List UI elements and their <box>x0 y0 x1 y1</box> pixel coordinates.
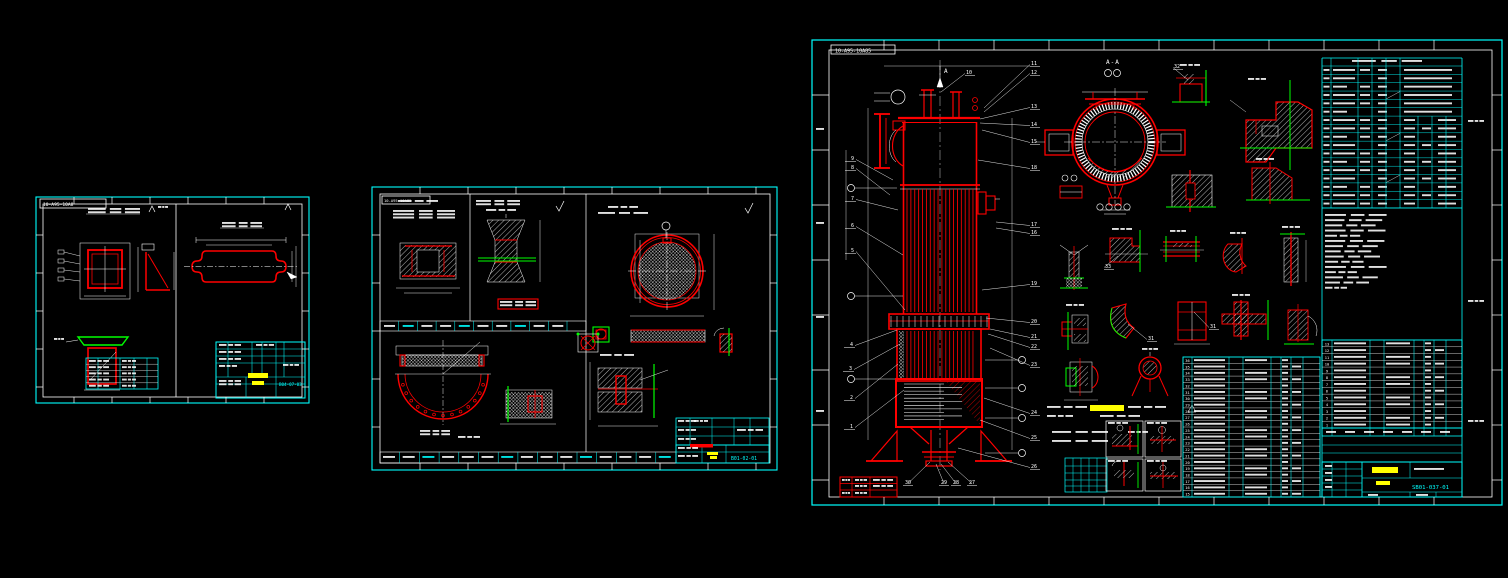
text-blur <box>1334 383 1366 385</box>
text-blur <box>1324 86 1330 88</box>
text-blur <box>1116 422 1120 424</box>
text-blur <box>1333 186 1347 188</box>
text-blur <box>264 344 268 346</box>
drawing-primitive <box>64 261 80 264</box>
drawing-primitive <box>1110 238 1140 262</box>
text-blur <box>1350 235 1360 237</box>
sheet-right-group: 3635343332313029282726252423222120191817… <box>812 40 1502 505</box>
text-blur <box>122 372 127 374</box>
drawing-primitive <box>417 250 439 272</box>
text-blur <box>283 364 288 366</box>
text-blur <box>1345 431 1355 433</box>
text-blur <box>1126 228 1132 230</box>
bom-row-number: 10 <box>1325 363 1329 367</box>
drawing-primitive <box>973 98 978 103</box>
text-blur <box>1333 127 1355 129</box>
text-blur <box>433 430 440 432</box>
drawing-primitive <box>1180 84 1202 102</box>
bom-row-number: 12 <box>1325 349 1329 353</box>
text-blur <box>1422 127 1431 129</box>
text-blur <box>228 380 233 382</box>
drawing-primitive <box>64 270 80 272</box>
text-blur <box>1386 376 1410 378</box>
text-blur <box>1468 300 1473 302</box>
drawing-primitive <box>897 329 981 381</box>
text-blur <box>1404 77 1452 79</box>
text-blur <box>1052 440 1071 442</box>
text-blur <box>1364 431 1374 433</box>
text-blur <box>1435 376 1444 378</box>
text-blur <box>1360 203 1370 205</box>
text-blur <box>1386 383 1410 385</box>
text-blur <box>420 430 430 432</box>
text-blur <box>476 200 491 202</box>
text-blur <box>692 455 698 457</box>
text-blur <box>1383 431 1393 433</box>
text-blur <box>235 351 241 353</box>
text-blur <box>686 429 690 431</box>
text-blur <box>250 225 262 227</box>
text-blur <box>1325 230 1346 232</box>
drawing-primitive <box>405 392 408 395</box>
text-blur <box>1438 119 1456 121</box>
drawing-primitive <box>58 259 64 263</box>
bom-row-number: 2 <box>1326 417 1328 421</box>
text-blur <box>227 365 231 367</box>
text-blur <box>1378 144 1387 146</box>
text-blur <box>1112 228 1119 230</box>
drawing-primitive <box>848 185 855 192</box>
callout-number: 13 <box>1031 104 1037 110</box>
text-blur <box>1194 410 1225 412</box>
text-blur <box>239 225 248 227</box>
drawing-primitive <box>707 452 718 455</box>
text-blur <box>816 316 824 318</box>
text-blur <box>860 479 863 481</box>
drawing-primitive <box>1376 481 1390 485</box>
cad-drawing-area[interactable]: 3635343332313029282726252423222120191817… <box>0 0 1508 578</box>
text-blur <box>1440 431 1450 433</box>
text-blur <box>89 372 96 374</box>
drawing-primitive <box>372 187 777 470</box>
text-blur <box>1333 111 1347 113</box>
text-blur <box>515 301 523 303</box>
text-blur <box>1194 455 1225 457</box>
text-blur <box>1333 136 1347 138</box>
drawing-primitive <box>1074 318 1086 326</box>
text-blur <box>1333 77 1355 79</box>
text-blur <box>1065 415 1073 417</box>
text-blur <box>422 456 434 458</box>
text-blur <box>704 420 708 422</box>
text-blur <box>89 385 96 387</box>
callout-number: 21 <box>1031 334 1037 340</box>
text-blur <box>110 211 121 213</box>
text-blur <box>128 385 131 387</box>
drawing-primitive <box>66 340 78 342</box>
text-blur <box>103 372 109 374</box>
text-blur <box>1351 266 1365 268</box>
drawing-primitive <box>1230 100 1246 112</box>
text-blur <box>1194 397 1225 399</box>
text-blur <box>219 365 225 367</box>
callout-number: 4 <box>850 342 853 348</box>
text-blur <box>1292 366 1301 368</box>
text-blur <box>1341 261 1349 263</box>
text-blur <box>692 447 698 449</box>
text-blur <box>845 492 847 494</box>
text-blur <box>421 325 432 327</box>
text-blur <box>235 358 241 360</box>
text-blur <box>678 447 685 449</box>
text-blur <box>842 492 845 494</box>
text-blur <box>1333 178 1355 180</box>
text-blur <box>1324 186 1330 188</box>
drawing-primitive <box>1019 450 1026 457</box>
text-blur <box>1194 461 1225 463</box>
drawing-primitive <box>1019 415 1026 422</box>
drawing-primitive <box>58 268 64 272</box>
text-blur <box>437 217 455 219</box>
callout-number: 23 <box>1031 362 1037 368</box>
bom-row-number: 36 <box>1185 359 1189 363</box>
text-blur <box>1333 153 1355 155</box>
text-blur <box>1378 194 1387 196</box>
callout-number: 12 <box>1031 70 1037 76</box>
text-blur <box>816 128 824 130</box>
text-blur <box>219 380 226 382</box>
text-blur <box>1325 479 1332 481</box>
text-blur <box>1425 397 1431 399</box>
text-blur <box>1422 144 1431 146</box>
text-blur <box>1435 390 1444 392</box>
text-blur <box>855 492 859 494</box>
text-blur <box>1047 406 1061 408</box>
text-blur <box>887 479 893 481</box>
drawing-primitive <box>982 285 1030 291</box>
text-blur <box>97 385 101 387</box>
text-blur <box>1295 226 1300 228</box>
section-view-label: A-A <box>1106 59 1120 66</box>
text-blur <box>290 364 294 366</box>
text-blur <box>507 200 520 202</box>
bom-row-number: 9 <box>1326 369 1328 373</box>
drawing-primitive <box>482 383 485 386</box>
text-blur <box>1351 214 1365 216</box>
drawing-primitive <box>58 277 64 281</box>
text-blur <box>1333 203 1355 205</box>
text-blur <box>1261 78 1266 80</box>
text-blur <box>614 354 621 356</box>
text-blur <box>132 360 136 362</box>
text-blur <box>1282 486 1288 488</box>
text-blur <box>222 222 236 224</box>
bom-row-number: 15 <box>1185 493 1189 497</box>
callout-number: 18 <box>1031 165 1037 171</box>
drawing-primitive <box>1308 316 1317 336</box>
text-blur <box>1324 127 1330 129</box>
text-blur <box>1325 245 1343 247</box>
text-blur <box>887 485 893 487</box>
drawing-primitive <box>597 333 600 336</box>
text-blur <box>458 436 465 438</box>
text-blur <box>1324 136 1330 138</box>
text-blur <box>1356 282 1369 284</box>
text-blur <box>496 325 507 327</box>
text-blur <box>515 325 526 327</box>
bom-row-number: 6 <box>1326 390 1328 394</box>
drawing-primitive <box>926 461 952 466</box>
text-blur <box>1325 224 1342 226</box>
text-blur <box>1360 194 1370 196</box>
text-blur <box>294 364 299 366</box>
text-blur <box>1066 304 1072 306</box>
drawing-primitive <box>1159 376 1168 396</box>
text-blur <box>1241 232 1246 234</box>
text-blur <box>419 213 433 215</box>
text-blur <box>1052 431 1071 433</box>
text-blur <box>219 358 226 360</box>
text-blur <box>1404 127 1415 129</box>
text-blur <box>1378 136 1387 138</box>
text-blur <box>482 456 494 458</box>
text-blur <box>122 385 127 387</box>
drawing-primitive <box>1222 314 1266 324</box>
text-blur <box>1292 493 1301 495</box>
bom-row-number: 24 <box>1185 435 1190 439</box>
drawing-primitive <box>986 318 1030 323</box>
text-blur <box>1425 349 1431 351</box>
drawing-primitive <box>1117 425 1123 431</box>
text-blur <box>1404 86 1452 88</box>
drawing-primitive <box>984 398 1030 414</box>
drawing-primitive <box>1194 312 1209 328</box>
text-blur <box>1360 161 1370 163</box>
text-blur <box>1248 78 1254 80</box>
text-blur <box>845 479 847 481</box>
text-blur <box>403 325 414 327</box>
text-blur <box>440 325 451 327</box>
text-blur <box>500 301 512 303</box>
text-blur <box>1149 348 1153 350</box>
text-blur <box>1324 119 1330 121</box>
text-blur <box>1378 203 1387 205</box>
drawing-primitive <box>855 364 898 399</box>
text-blur <box>1282 461 1288 463</box>
text-blur <box>1425 410 1431 412</box>
drawing-primitive <box>1114 70 1121 77</box>
text-blur <box>1245 448 1267 450</box>
drawing-primitive <box>380 194 770 463</box>
text-blur <box>1324 178 1330 180</box>
text-blur <box>1074 304 1078 306</box>
drawing-primitive <box>402 355 482 366</box>
text-blur <box>1325 219 1344 221</box>
text-blur <box>419 210 433 212</box>
text-blur <box>1402 60 1422 62</box>
drawing-primitive <box>216 342 305 398</box>
text-blur <box>235 383 241 385</box>
text-blur <box>165 206 168 208</box>
drawing-primitive <box>1107 185 1112 198</box>
text-blur <box>1360 153 1370 155</box>
text-blur <box>1378 127 1387 129</box>
text-blur <box>1360 127 1370 129</box>
text-blur <box>1438 153 1456 155</box>
text-blur <box>1194 416 1225 418</box>
text-blur <box>507 209 516 211</box>
bom-row-number: 21 <box>1185 454 1189 458</box>
text-blur <box>1324 161 1330 163</box>
text-blur <box>1194 378 1225 380</box>
text-blur <box>494 200 504 202</box>
text-blur <box>1325 465 1332 467</box>
text-blur <box>89 366 96 368</box>
cad-canvas[interactable]: 3635343332313029282726252423222120191817… <box>0 0 1508 578</box>
bom-row-number: 20 <box>1185 461 1189 465</box>
text-blur <box>1422 161 1431 163</box>
text-blur <box>128 366 131 368</box>
text-blur <box>1333 194 1355 196</box>
text-blur <box>1161 422 1167 424</box>
text-blur <box>437 210 455 212</box>
text-blur <box>1120 228 1124 230</box>
text-blur <box>128 372 131 374</box>
callout-number: 2 <box>850 395 853 401</box>
bom-row-number: 32 <box>1185 384 1189 388</box>
drawing-primitive <box>1118 185 1123 198</box>
text-blur <box>1386 342 1410 344</box>
bom-row-number: 19 <box>1185 467 1189 471</box>
text-blur <box>1324 144 1330 146</box>
text-blur <box>103 366 109 368</box>
drawing-primitive <box>43 204 302 397</box>
text-blur <box>1361 224 1376 226</box>
text-blur <box>97 366 101 368</box>
text-blur <box>864 485 867 487</box>
sheet-left-drawing-number: B04-07-03 <box>279 382 302 387</box>
text-blur <box>88 208 106 210</box>
drawing-primitive <box>473 399 476 402</box>
text-blur <box>1438 203 1456 205</box>
drawing-primitive <box>1019 385 1026 392</box>
drawing-primitive <box>856 160 893 181</box>
text-blur <box>678 429 684 431</box>
text-blur <box>1325 250 1341 252</box>
text-blur <box>1360 102 1370 104</box>
text-blur <box>1058 415 1064 417</box>
text-blur <box>97 360 101 362</box>
bom-row-number: 17 <box>1185 480 1189 484</box>
text-blur <box>507 203 520 205</box>
text-blur <box>1368 494 1378 496</box>
text-blur <box>1245 294 1250 296</box>
text-blur <box>219 344 226 346</box>
text-blur <box>1282 448 1288 450</box>
text-blur <box>1155 406 1166 408</box>
callout-number: 6 <box>851 223 854 229</box>
text-blur <box>1092 431 1108 433</box>
text-blur <box>1256 78 1260 80</box>
text-blur <box>1333 161 1347 163</box>
drawing-primitive <box>1092 366 1098 388</box>
text-blur <box>1245 455 1267 457</box>
bom-row-number: 3 <box>1326 410 1328 414</box>
drawing-primitive <box>856 169 890 196</box>
drawing-primitive <box>142 244 154 250</box>
text-blur <box>250 222 262 224</box>
drawing-primitive <box>996 222 1030 226</box>
drawing-primitive <box>149 206 155 212</box>
text-blur <box>1245 372 1267 374</box>
drawing-primitive <box>710 456 717 459</box>
text-blur <box>1324 169 1330 171</box>
text-blur <box>1402 431 1412 433</box>
text-blur <box>393 213 414 215</box>
text-blur <box>1245 378 1267 380</box>
text-blur <box>393 217 414 219</box>
text-blur <box>580 456 592 458</box>
text-blur <box>1404 136 1415 138</box>
text-blur <box>1245 391 1267 393</box>
text-blur <box>1334 369 1366 371</box>
text-blur <box>1079 304 1084 306</box>
text-blur <box>1128 406 1141 408</box>
drawing-primitive <box>1124 204 1130 210</box>
text-blur <box>1194 423 1225 425</box>
bom-row-number: 31 <box>1185 391 1189 395</box>
text-blur <box>1075 406 1087 408</box>
drawing-primitive <box>78 337 128 345</box>
text-blur <box>686 447 690 449</box>
text-blur <box>122 360 127 362</box>
bom-row-number: 4 <box>1326 403 1329 407</box>
text-blur <box>1378 94 1387 96</box>
drawing-primitive <box>982 130 1030 143</box>
text-blur <box>222 225 236 227</box>
drawing-primitive <box>416 406 419 409</box>
text-blur <box>1350 240 1363 242</box>
text-blur <box>1425 363 1431 365</box>
text-blur <box>1108 460 1115 462</box>
bom-row-number: 26 <box>1185 423 1189 427</box>
text-blur <box>1147 422 1154 424</box>
drawing-primitive <box>64 252 80 256</box>
text-blur <box>1325 486 1332 488</box>
text-blur <box>1360 169 1370 171</box>
text-blur <box>1438 194 1456 196</box>
text-blur <box>1194 429 1225 431</box>
text-blur <box>691 429 696 431</box>
bom-row-number: 18 <box>1185 474 1189 478</box>
text-blur <box>1282 359 1288 361</box>
text-blur <box>1325 214 1346 216</box>
text-blur <box>1282 467 1288 469</box>
text-blur <box>1245 474 1267 476</box>
bom-row-number: 1 <box>1326 424 1328 428</box>
drawing-primitive <box>1386 133 1400 141</box>
text-blur <box>476 203 491 205</box>
text-blur <box>1386 417 1410 419</box>
text-blur <box>1282 429 1288 431</box>
text-blur <box>686 455 690 457</box>
text-blur <box>1479 300 1484 302</box>
text-blur <box>103 385 109 387</box>
text-blur <box>515 304 523 306</box>
text-blur <box>1368 230 1386 232</box>
text-blur <box>1404 178 1415 180</box>
text-blur <box>1144 406 1152 408</box>
